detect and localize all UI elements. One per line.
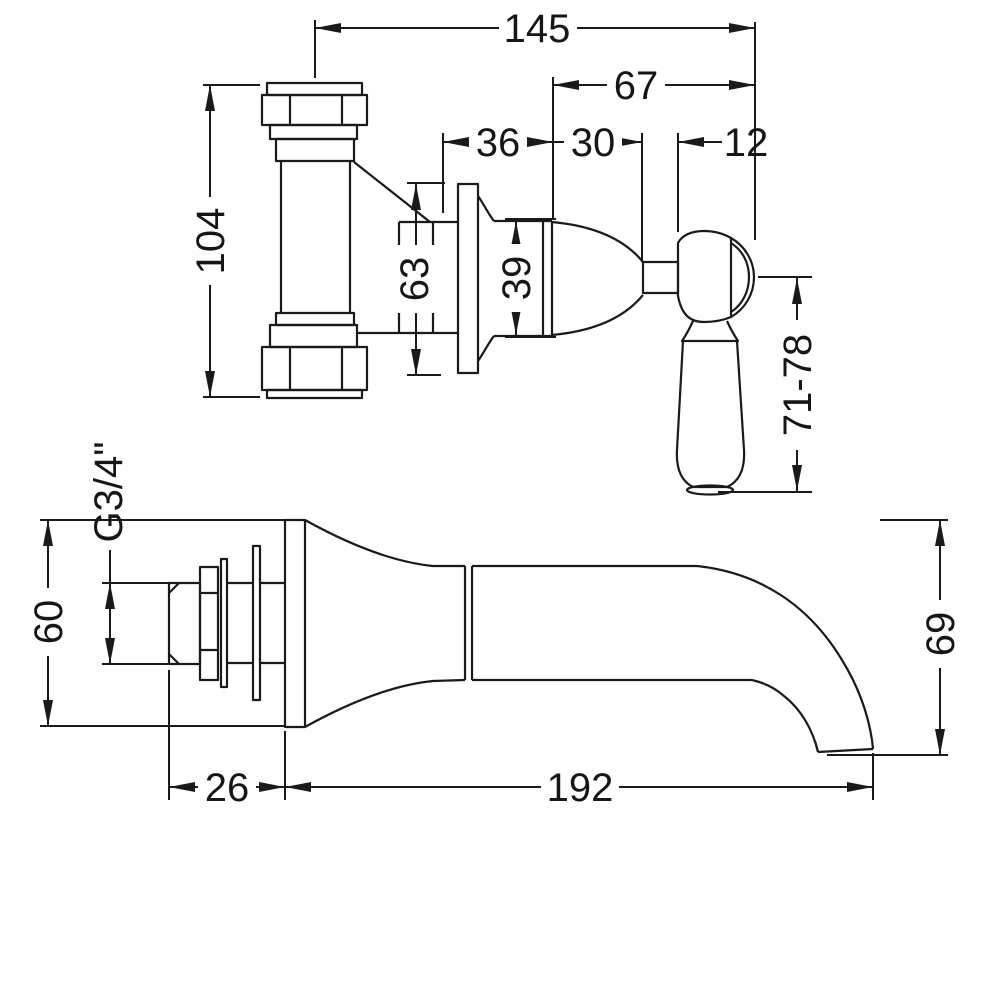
dim-36-30-12: 36 30 12 — [443, 121, 768, 262]
inlet-thread — [169, 583, 200, 664]
lever-ball — [678, 231, 754, 322]
dim-label-36: 36 — [476, 121, 521, 165]
dim-label-192: 192 — [547, 766, 614, 810]
arrowhead — [511, 221, 521, 247]
dim-label-60-group: 60 — [26, 588, 71, 656]
arrowhead — [511, 309, 521, 335]
arrowhead — [411, 349, 421, 375]
arrowhead — [205, 85, 215, 111]
spout-seam — [465, 566, 472, 680]
dim-label-12: 12 — [724, 121, 769, 165]
pipe-top-hex-nut — [262, 95, 367, 125]
arrowhead — [935, 520, 945, 546]
flange-cone-top — [478, 196, 494, 221]
pipe-tube — [281, 161, 350, 313]
thread-section-mid — [227, 583, 253, 663]
spout-inner-bend — [752, 680, 818, 752]
spout-outer-bend — [697, 566, 873, 749]
pipe-top-nut-facets — [290, 95, 342, 125]
dim-39: 39 — [494, 219, 556, 337]
thread-section-wall — [260, 583, 285, 663]
dome-cap-top — [552, 222, 643, 262]
dim-label-63: 63 — [393, 257, 437, 302]
valve-trim — [458, 184, 643, 373]
arrowhead — [285, 782, 311, 792]
dim-label-63-group: 63 — [392, 245, 437, 313]
pipe-top-cap — [267, 83, 362, 95]
spout-view: 60 G3/4" 26 192 — [26, 442, 963, 810]
arrowhead — [729, 23, 755, 33]
dim-g34: G3/4" — [87, 442, 169, 664]
dim-label-71-78: 71-78 — [776, 334, 820, 436]
drawing-canvas: 145 67 36 30 12 — [0, 0, 1005, 1005]
arrowhead — [105, 583, 115, 609]
pipe-top-ring — [270, 125, 357, 139]
pipe-bottom-cap — [267, 390, 362, 398]
pipe-tee-fitting — [262, 83, 458, 398]
dim-label-39-group: 39 — [494, 244, 539, 312]
arrowhead — [792, 278, 802, 304]
valve-view: 145 67 36 30 12 — [188, 7, 820, 495]
dim-145: 145 — [315, 7, 755, 240]
inlet-assembly — [169, 520, 305, 727]
thread-chamfers — [169, 583, 179, 664]
arrowhead — [259, 782, 285, 792]
dim-label-60: 60 — [27, 600, 71, 645]
tee-branch-diagonal — [354, 162, 430, 222]
dim-label-69-group: 69 — [918, 600, 963, 668]
lever-handle — [643, 231, 754, 495]
arrowhead — [205, 371, 215, 397]
lever-stem-block — [643, 262, 678, 293]
arrowhead — [678, 137, 704, 147]
dim-label-39: 39 — [495, 256, 539, 301]
dim-label-g34: G3/4" — [87, 442, 131, 543]
arrowhead — [43, 700, 53, 726]
spout-wall-plate — [285, 520, 305, 727]
lock-nut — [200, 567, 218, 680]
arrowhead — [169, 782, 195, 792]
spout-flare-bottom — [305, 680, 465, 727]
washer-outer — [253, 546, 260, 700]
lever-grip — [677, 341, 744, 487]
dim-label-g34-group: G3/4" — [87, 442, 131, 543]
spout-tip-face — [815, 741, 873, 752]
dim-label-67: 67 — [614, 64, 659, 108]
arrowhead — [411, 184, 421, 210]
dim-104: 104 — [188, 85, 260, 397]
dim-26-192: 26 192 — [169, 670, 873, 810]
arrowhead — [553, 80, 579, 90]
flange-cone-bottom — [478, 336, 494, 361]
arrowhead — [847, 782, 873, 792]
arrowhead — [935, 729, 945, 755]
pipe-bottom-nut-facets — [290, 347, 342, 390]
dim-label-26: 26 — [205, 766, 250, 810]
lock-nut-facets — [200, 593, 218, 650]
dome-cap-bottom — [552, 295, 643, 335]
dim-label-69: 69 — [919, 612, 963, 657]
arrowhead — [729, 80, 755, 90]
pipe-bottom-socket — [276, 313, 354, 325]
arrowhead — [315, 23, 341, 33]
dim-60: 60 — [26, 520, 285, 726]
arrowhead — [527, 137, 553, 147]
dim-label-104: 104 — [189, 208, 233, 275]
arrowhead — [443, 137, 469, 147]
pipe-bottom-hex-nut — [262, 347, 367, 390]
dim-label-71-78-group: 71-78 — [775, 320, 820, 450]
pipe-top-socket — [276, 139, 354, 161]
spout-body — [305, 520, 873, 752]
washer-inner — [221, 559, 227, 687]
spout-flare-top — [305, 520, 465, 566]
arrowhead — [43, 520, 53, 546]
arrowhead — [105, 638, 115, 664]
pipe-bottom-ring — [270, 325, 357, 347]
dim-label-145: 145 — [504, 7, 571, 51]
dim-label-104-group: 104 — [188, 197, 233, 285]
technical-drawing-page: 145 67 36 30 12 — [0, 0, 1005, 1005]
dim-label-30: 30 — [571, 121, 616, 165]
dim-69: 69 — [827, 520, 963, 755]
lever-collar — [682, 321, 738, 341]
wall-flange-plate — [458, 184, 478, 373]
arrowhead — [792, 465, 802, 491]
